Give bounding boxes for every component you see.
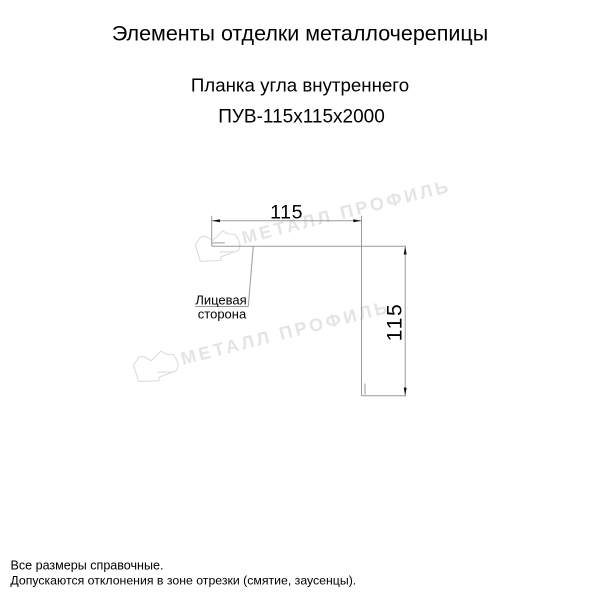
svg-text:ПУВ-115х115х2000: ПУВ-115х115х2000 bbox=[218, 106, 385, 127]
svg-text:сторона: сторона bbox=[198, 306, 247, 321]
svg-text:115: 115 bbox=[383, 302, 406, 341]
svg-text:Допускаются отклонения в зоне: Допускаются отклонения в зоне отрезки (с… bbox=[10, 573, 356, 587]
svg-text:Планка угла внутреннего: Планка угла внутреннего bbox=[191, 74, 409, 95]
svg-text:115: 115 bbox=[270, 201, 303, 223]
svg-text:Все размеры справочные.: Все размеры справочные. bbox=[11, 559, 164, 573]
svg-text:Элементы отделки металлочерепи: Элементы отделки металлочерепицы bbox=[112, 22, 488, 46]
svg-text:Лицевая: Лицевая bbox=[195, 293, 246, 308]
